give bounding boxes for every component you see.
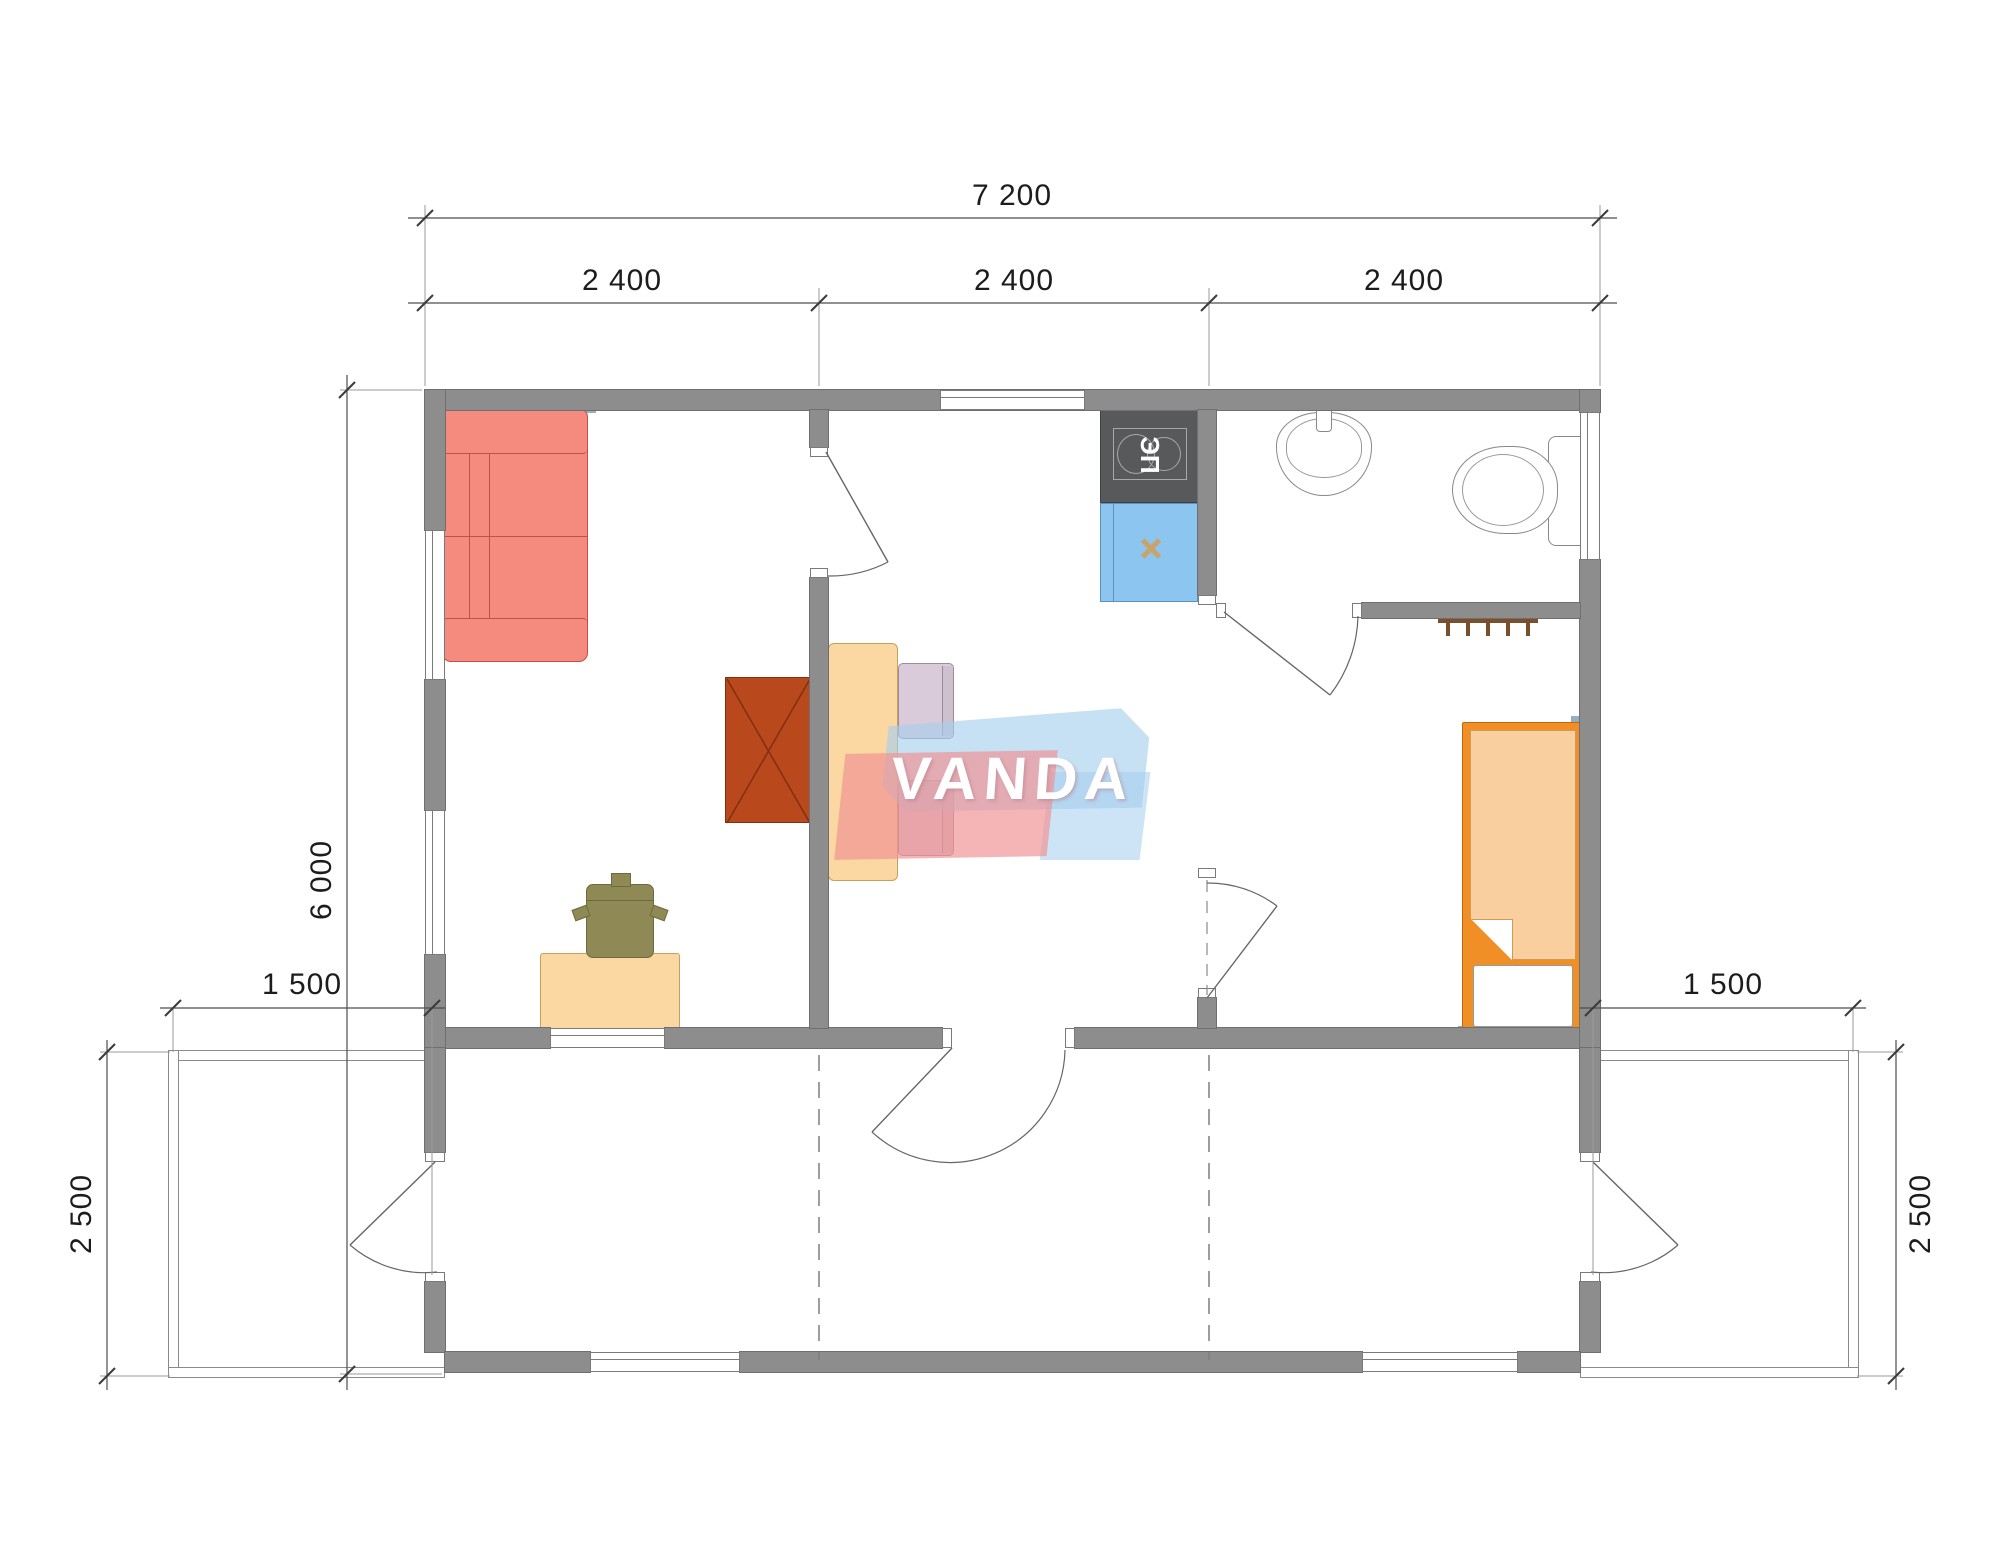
kitchen-sink	[1100, 503, 1198, 602]
wall-right-seg2	[1580, 560, 1600, 1048]
terrace-thin-wall-left-bottom	[168, 1367, 445, 1378]
dim-bay1-width: 2 400	[582, 264, 662, 298]
door-arc-terrace-left	[350, 1245, 437, 1273]
wall-A-door-jamb-top	[810, 447, 828, 457]
door-leaf-terrace-right	[1593, 1162, 1678, 1245]
window-living-left-2	[425, 810, 445, 955]
sofa-cushion-divider-h	[443, 536, 587, 537]
cabinet-cross-icon	[726, 678, 811, 824]
terrace-parapet-seg3	[1518, 1352, 1580, 1372]
terrace-wall-right-stub2	[1580, 1282, 1600, 1352]
stove: ЭП	[1100, 405, 1198, 503]
terrace-thin-wall-right-bottom	[1580, 1367, 1859, 1378]
terrace-left-door-jamb-bottom	[425, 1272, 445, 1282]
terrace-right-door-jamb-bottom	[1580, 1272, 1600, 1282]
wall-left-seg2	[425, 680, 445, 810]
wall-A-seg2	[810, 578, 828, 1028]
door-arc-bathroom	[1330, 616, 1358, 695]
plan-linework-svg	[0, 0, 2000, 1563]
window-living-bottom	[550, 1028, 665, 1048]
door-arc-bedroom	[1207, 883, 1277, 906]
window-glass-line	[1587, 413, 1588, 559]
window-glass-line	[941, 397, 1084, 398]
coat-hook-icon	[1506, 622, 1510, 636]
window-kitchen-top	[940, 390, 1085, 410]
dim-terrace-right-width: 1 500	[1683, 968, 1763, 1002]
wall-B-seg2	[1198, 998, 1216, 1028]
coat-hook-icon	[1446, 622, 1450, 636]
dining-chair-1-back	[942, 666, 953, 736]
office-chair-armrest-right	[649, 905, 668, 922]
terrace-thin-wall-right-top	[1600, 1050, 1859, 1061]
door-leaf-terrace-main	[872, 1048, 952, 1132]
dim-bay2-width: 2 400	[974, 264, 1054, 298]
wall-bottom-seg2	[665, 1028, 942, 1048]
wall-A-door-jamb-bottom	[810, 568, 828, 578]
terrace-door-jamb-left	[942, 1028, 952, 1048]
dimension-ticks	[99, 210, 1904, 1384]
dim-overall-width: 7 200	[972, 179, 1052, 213]
coat-hook-icon	[1526, 622, 1530, 636]
wall-bathroom	[1362, 603, 1580, 618]
kitchen-sink-edge-line	[1113, 504, 1114, 601]
terrace-thin-wall-right	[1848, 1050, 1859, 1378]
terrace-left-door-jamb-top	[425, 1152, 445, 1162]
wall-left-seg1	[425, 390, 445, 530]
stove-label: ЭП	[1101, 406, 1199, 504]
coat-hook-icon	[1466, 622, 1470, 636]
door-arc-terrace-right	[1591, 1245, 1678, 1273]
wall-B-door-jamb-top	[1198, 868, 1216, 878]
bathroom-door-jamb-right	[1352, 603, 1362, 618]
office-chair-armrest-left	[571, 905, 590, 922]
terrace-thin-wall-left-top	[168, 1050, 425, 1061]
wall-B-cap-top	[1198, 595, 1216, 605]
wall-left-seg3	[425, 955, 445, 1048]
terrace-parapet-seg1	[445, 1352, 590, 1372]
door-leaf-bedroom	[1207, 906, 1277, 998]
cabinet	[725, 677, 810, 823]
terrace-right-door-jamb-top	[1580, 1152, 1600, 1162]
watermark-blue-block-2	[1040, 772, 1151, 860]
door-leaf-bathroom	[1224, 612, 1330, 695]
window-terrace-parapet-1	[590, 1352, 740, 1372]
door-leaf-living	[826, 452, 888, 562]
door-arc-living	[828, 562, 888, 576]
office-chair-back	[587, 885, 653, 901]
window-glass-line	[1363, 1359, 1517, 1360]
coat-hook-icon	[1486, 622, 1490, 636]
sofa-armrest	[443, 618, 587, 661]
bed-pillow	[1473, 965, 1573, 1027]
bed	[1462, 722, 1582, 1034]
dim-bay3-width: 2 400	[1364, 264, 1444, 298]
terrace-parapet-seg2	[740, 1352, 1362, 1372]
washbasin	[1276, 396, 1372, 500]
door-arc-terrace-main	[872, 1050, 1065, 1163]
bathroom-door-jamb-left	[1216, 603, 1226, 618]
window-living-left-1	[425, 530, 445, 680]
terrace-wall-left-stub1	[425, 1048, 445, 1152]
floor-plan-canvas: ЭП	[0, 0, 2000, 1563]
window-glass-line	[432, 811, 433, 954]
door-leaf-terrace-left	[350, 1162, 435, 1245]
wall-B-door-jamb-bottom	[1198, 988, 1216, 998]
toilet	[1452, 432, 1584, 548]
wall-bottom-seg3	[1075, 1028, 1580, 1048]
terrace-thin-wall-left	[168, 1050, 179, 1378]
dining-table	[828, 643, 898, 881]
office-chair-headrest	[611, 873, 631, 887]
sofa-backrest	[443, 409, 587, 454]
office-chair	[586, 884, 654, 958]
coat-hooks	[1438, 618, 1538, 638]
wall-right-seg1	[1580, 390, 1600, 412]
dim-terrace-right-depth: 2 500	[1904, 1174, 1938, 1254]
terrace-door-jamb-right	[1065, 1028, 1075, 1048]
wall-A-seg1	[810, 410, 828, 447]
window-glass-line	[432, 531, 433, 679]
dining-chair-1	[898, 663, 954, 739]
terrace-wall-left-stub2	[425, 1282, 445, 1352]
window-glass-line	[591, 1359, 739, 1360]
dim-overall-depth: 6 000	[305, 840, 339, 920]
dim-terrace-left-depth: 2 500	[65, 1174, 99, 1254]
dining-chair-2-back	[942, 783, 953, 853]
wall-B-seg1	[1198, 410, 1216, 595]
terrace-wall-right-stub1	[1580, 1048, 1600, 1152]
window-bathroom-right	[1580, 412, 1600, 560]
window-glass-line	[551, 1035, 664, 1036]
sofa	[442, 408, 588, 662]
dim-terrace-left-width: 1 500	[262, 968, 342, 1002]
desk	[540, 953, 680, 1033]
toilet-seat	[1462, 454, 1544, 526]
window-terrace-parapet-2	[1362, 1352, 1518, 1372]
dining-chair-2	[898, 780, 954, 856]
dimension-extension-lines	[100, 205, 1903, 1376]
